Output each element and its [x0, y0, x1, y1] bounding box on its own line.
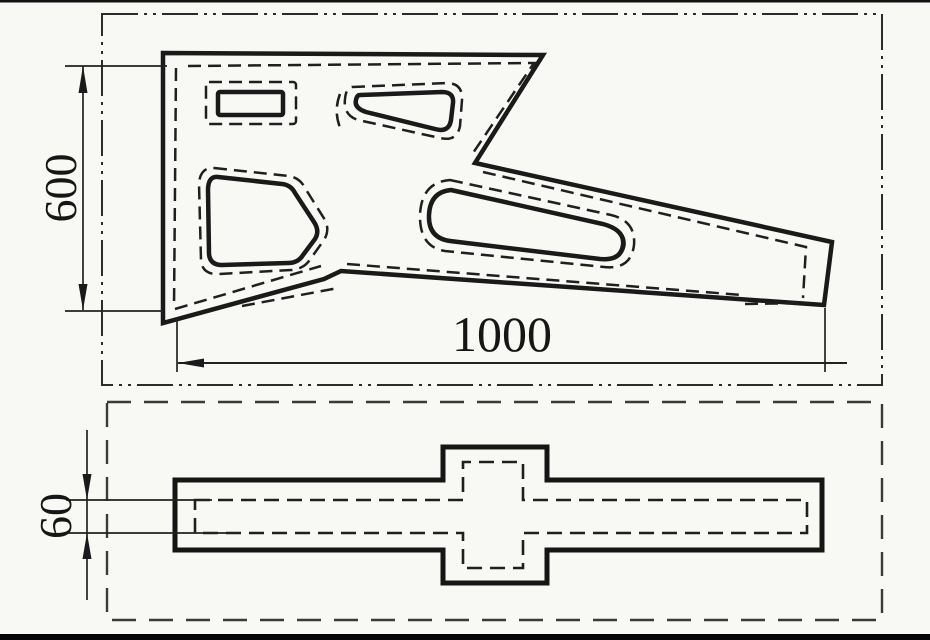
dimension-label-60: 60: [30, 493, 81, 539]
bottom-border-bar: [0, 634, 930, 640]
engineering-drawing: 600 1000 60: [0, 0, 930, 640]
finished-arm-bottom-right-dashed: [745, 303, 806, 304]
dimension-label-600: 600: [35, 154, 86, 223]
drawing-canvas: 600 1000 60: [0, 0, 930, 640]
dimension-label-1000: 1000: [452, 306, 552, 362]
top-border-line: [0, 0, 930, 3]
